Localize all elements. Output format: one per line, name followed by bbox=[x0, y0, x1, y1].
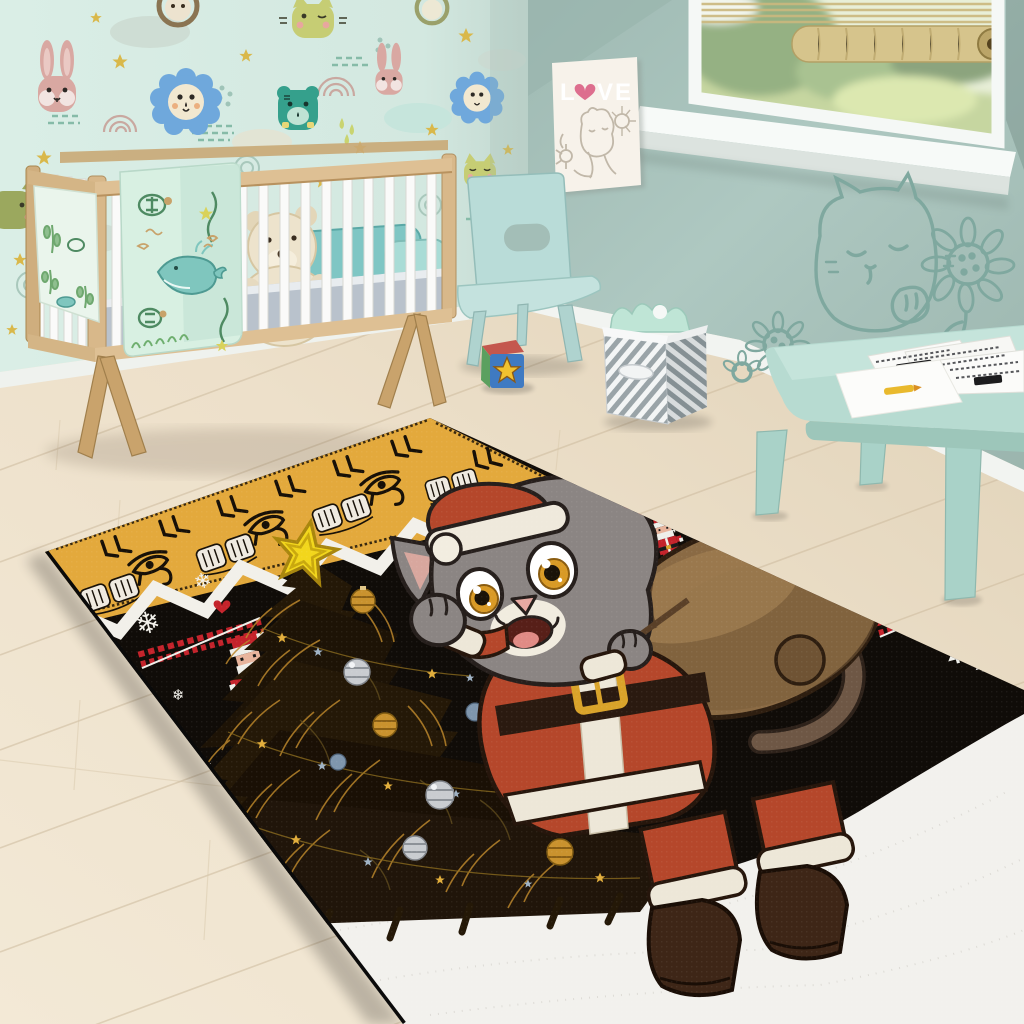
scene-canvas: L VE bbox=[0, 0, 1024, 1024]
toy-block bbox=[481, 340, 524, 388]
poster-letter-l: L bbox=[560, 79, 577, 106]
crib-end-cloth bbox=[34, 186, 99, 322]
wallpaper-bear bbox=[277, 86, 319, 130]
chair-back-cutout bbox=[504, 223, 551, 252]
nursery-room-photo: L VE bbox=[0, 0, 1024, 1024]
sea-blanket bbox=[120, 163, 242, 356]
bin-toys bbox=[610, 304, 690, 332]
poster-letters-ve: VE bbox=[597, 79, 633, 106]
love-poster: L VE bbox=[552, 57, 645, 196]
